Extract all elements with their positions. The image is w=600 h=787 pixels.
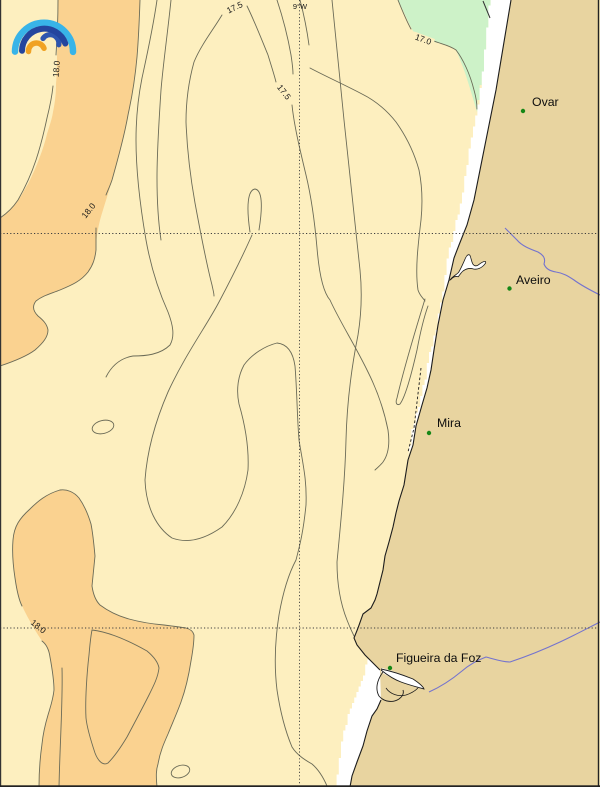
- svg-text:18.0: 18.0: [51, 60, 62, 77]
- svg-text:Aveiro: Aveiro: [516, 273, 551, 287]
- svg-text:9°W: 9°W: [293, 2, 308, 11]
- svg-text:Mira: Mira: [437, 416, 461, 430]
- svg-text:Ovar: Ovar: [532, 95, 559, 109]
- svg-text:Figueira da Foz: Figueira da Foz: [396, 651, 481, 665]
